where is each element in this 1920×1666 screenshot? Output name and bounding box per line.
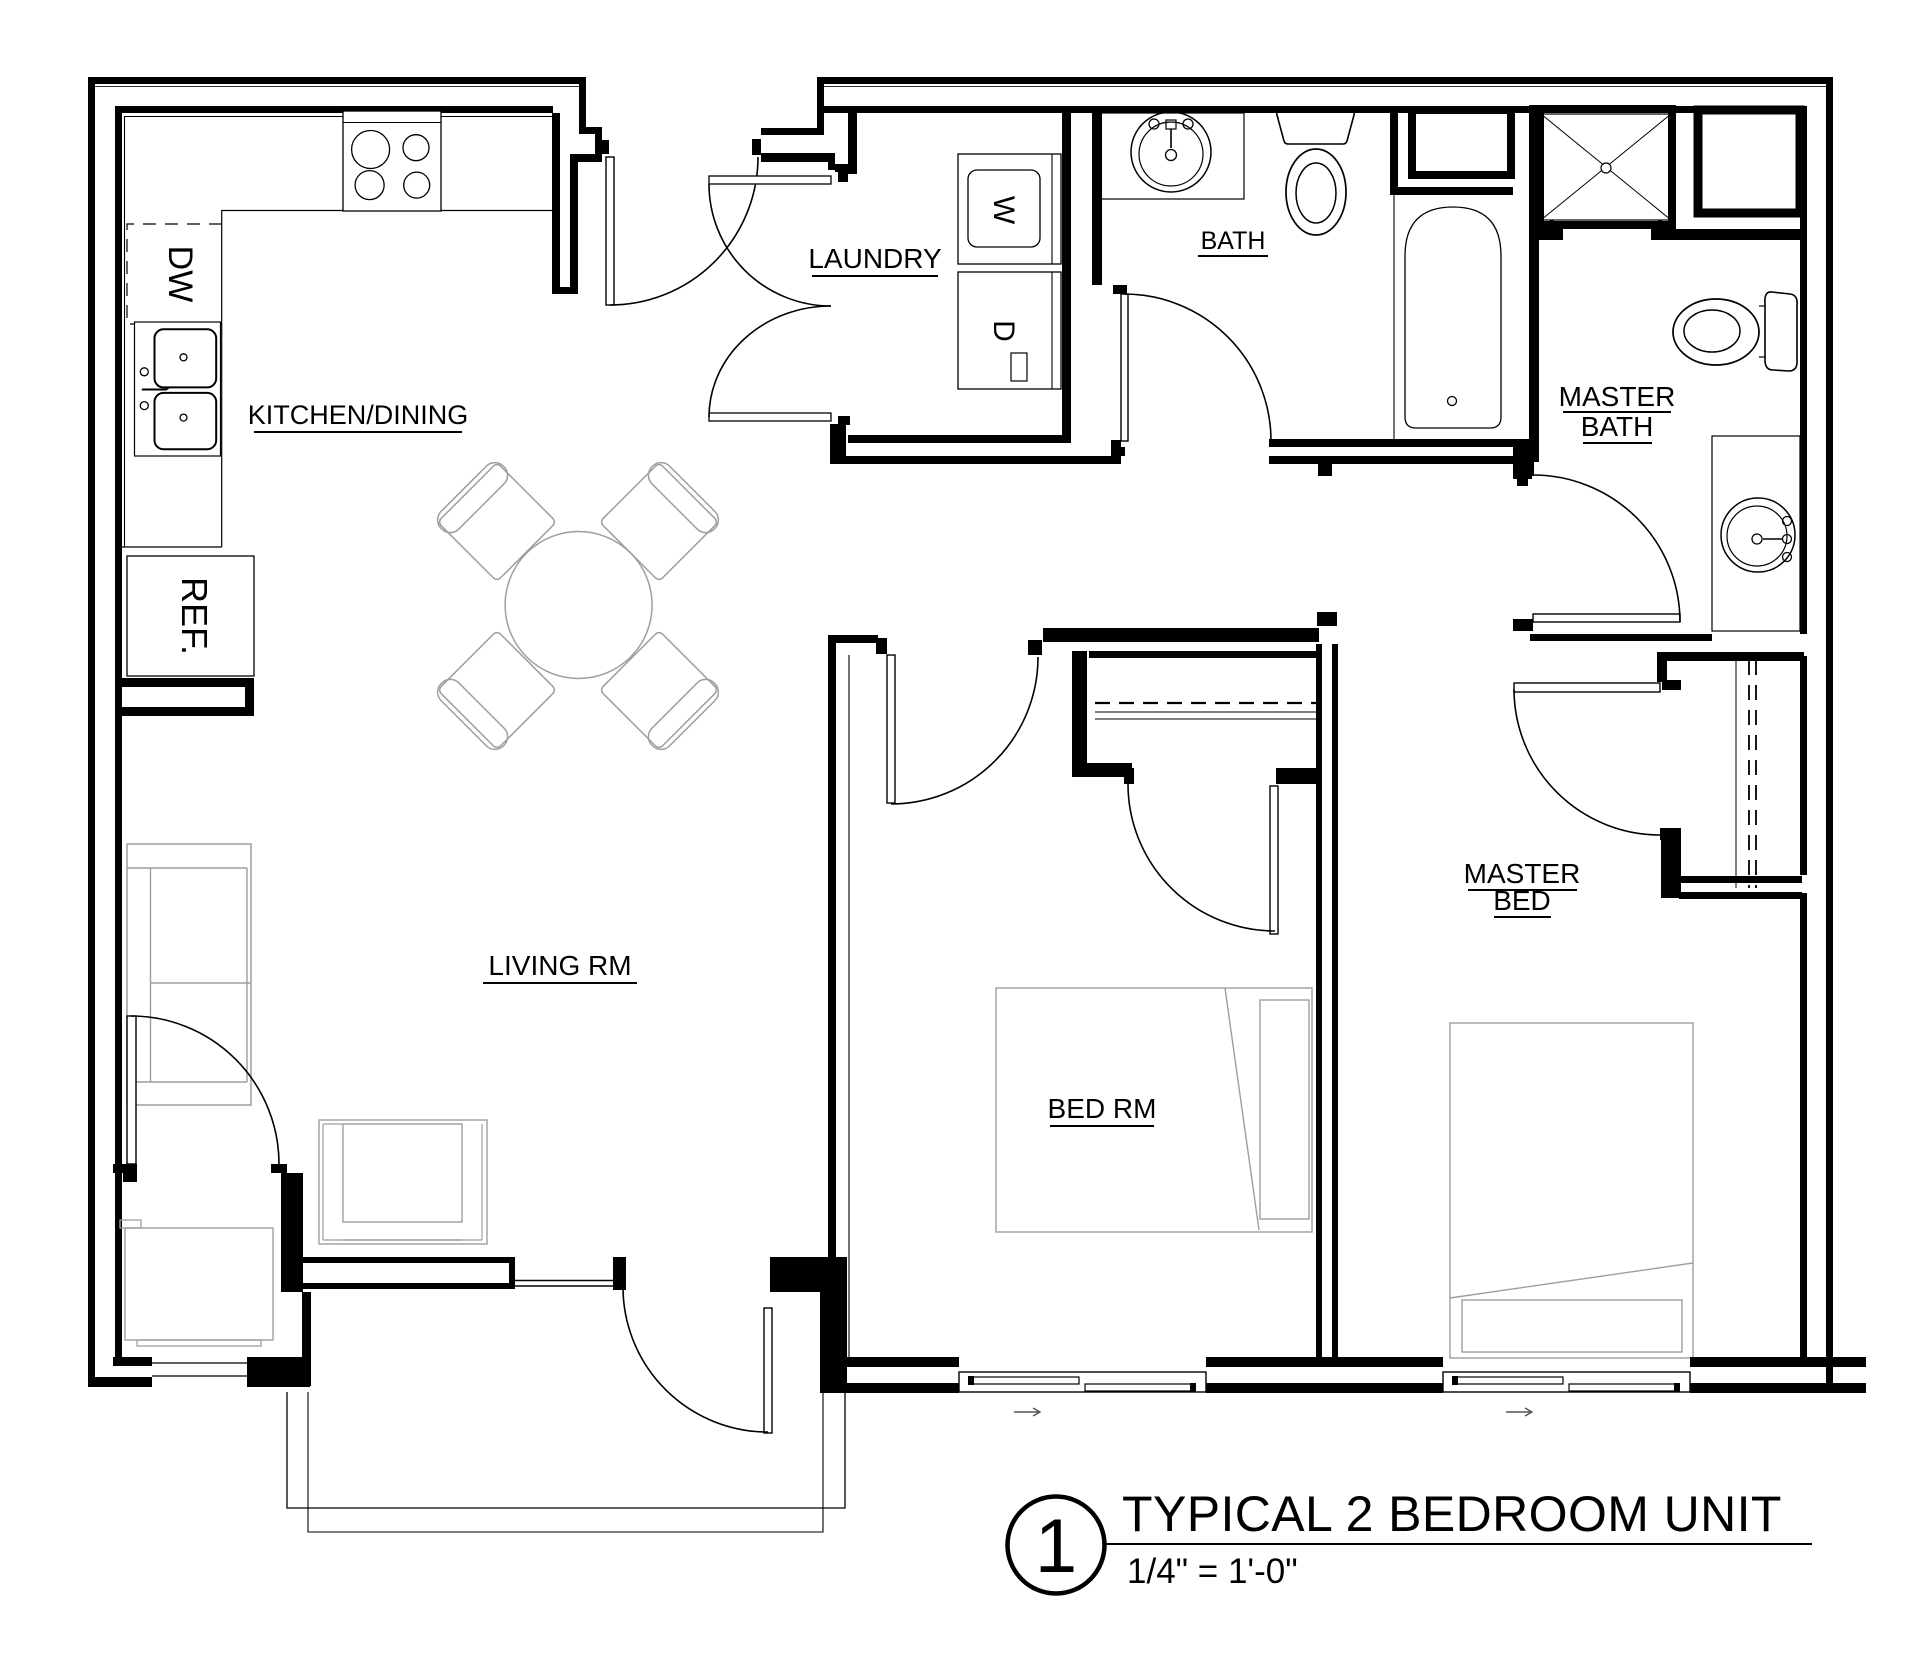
svg-text:BED RM: BED RM: [1048, 1093, 1157, 1124]
svg-text:BED: BED: [1493, 885, 1551, 916]
svg-text:DW: DW: [161, 246, 199, 303]
svg-text:BATH: BATH: [1201, 227, 1266, 255]
svg-text:1/4" = 1'-0": 1/4" = 1'-0": [1127, 1552, 1298, 1591]
svg-text:MASTER: MASTER: [1559, 381, 1676, 412]
svg-text:BATH: BATH: [1581, 411, 1654, 442]
svg-text:LIVING RM: LIVING RM: [488, 950, 631, 981]
svg-text:1: 1: [1035, 1504, 1077, 1589]
svg-text:LAUNDRY: LAUNDRY: [808, 243, 942, 274]
svg-text:D: D: [987, 320, 1020, 342]
svg-text:KITCHEN/DINING: KITCHEN/DINING: [248, 400, 469, 430]
svg-text:TYPICAL 2 BEDROOM UNIT: TYPICAL 2 BEDROOM UNIT: [1122, 1486, 1782, 1542]
svg-text:REF.: REF.: [174, 577, 215, 655]
svg-text:W: W: [987, 196, 1020, 225]
